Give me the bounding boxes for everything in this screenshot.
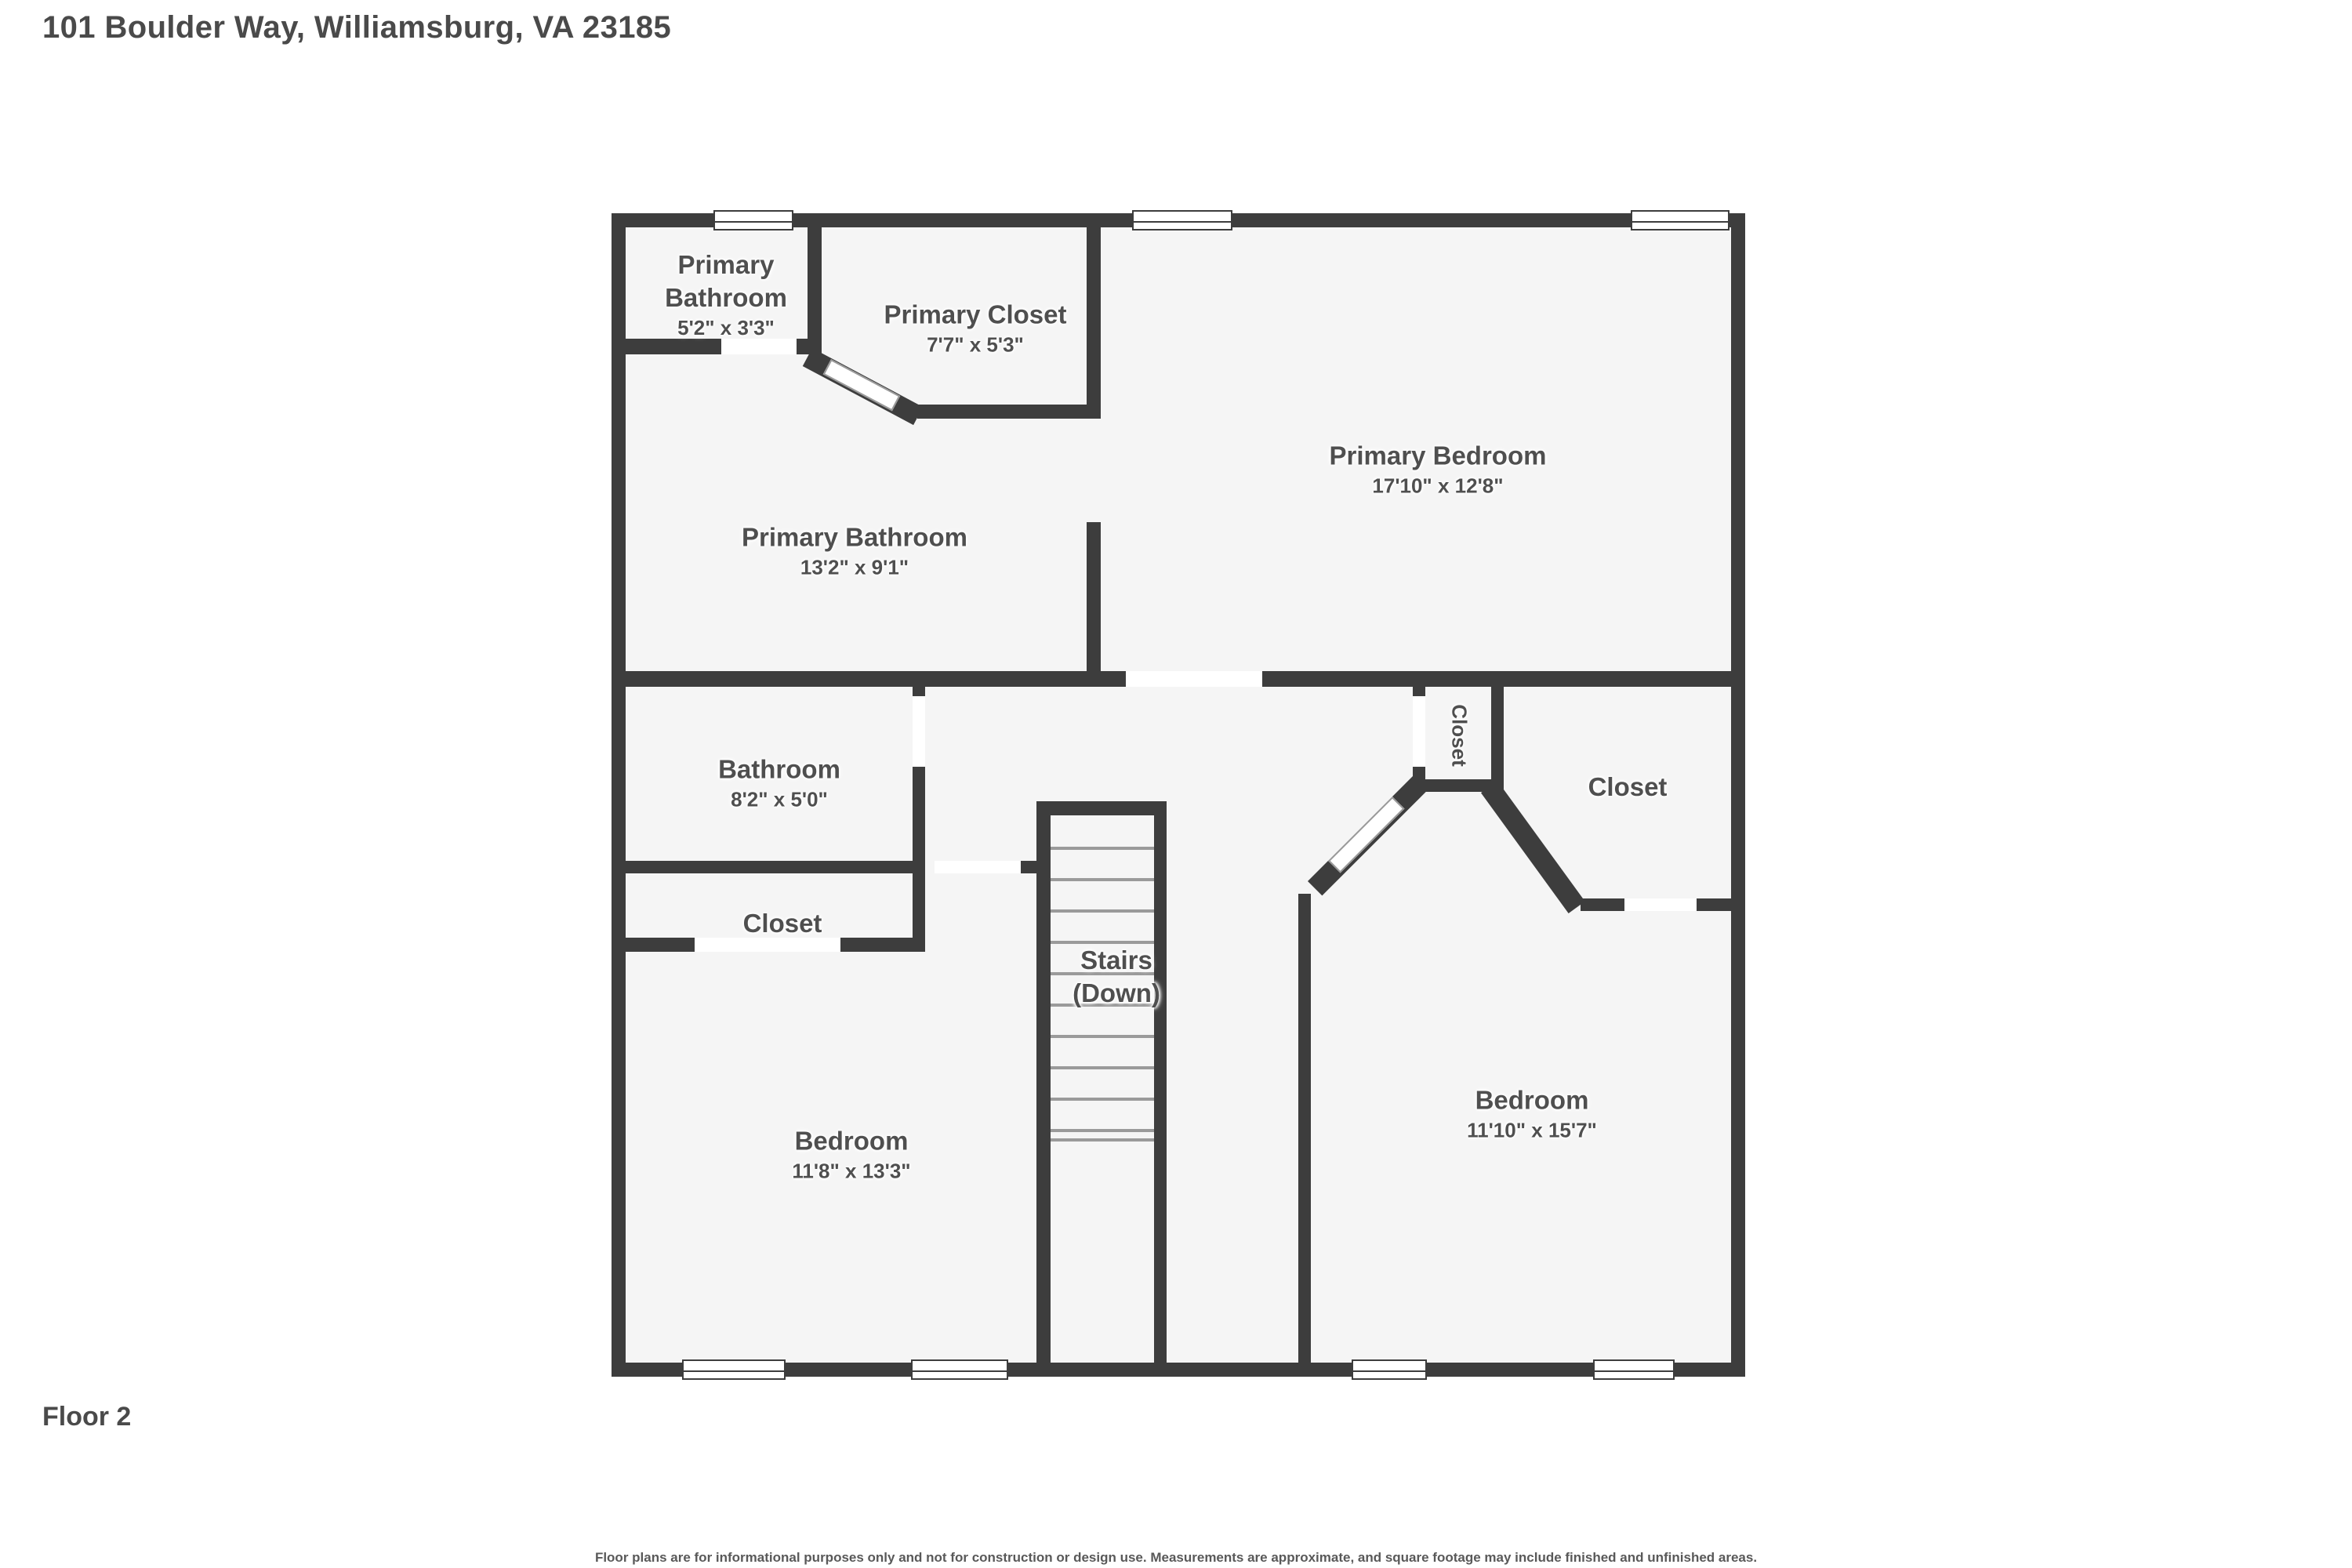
wall [1087,522,1101,671]
door-opening [913,696,925,767]
floor-plan-page: 101 Boulder Way, Williamsburg, VA 23185 … [0,0,2352,1568]
room-dimensions: 5'2" x 3'3" [665,317,787,343]
floor-plan: Primary Bathroom 5'2" x 3'3" Primary Clo… [0,0,2352,1568]
room-name: Primary [665,250,787,283]
room-dimensions: 11'8" x 13'3" [792,1159,910,1185]
window-mullion [1595,1370,1673,1371]
wall [808,213,822,354]
wall [913,687,925,696]
window-mullion [1353,1370,1425,1371]
wall [1731,213,1745,1377]
wall [612,861,925,873]
wall [1036,801,1051,1377]
room-label-bedroom-left: Bedroom 11'8" x 13'3" [792,1126,910,1185]
door-opening [1126,671,1262,687]
wall [1021,861,1036,873]
door-opening [935,861,1021,873]
room-dimensions: 17'10" x 12'8" [1330,474,1547,499]
stair-step-line [1051,1129,1154,1131]
room-name: Bathroom [665,283,787,316]
room-name: Bathroom [718,754,840,787]
floor-label: Floor 2 [42,1402,131,1433]
window [1631,210,1730,230]
stairs-direction: (Down) [1073,978,1160,1011]
wall [1087,213,1101,419]
room-dimensions: 8'2" x 5'0" [718,787,840,813]
room-dimensions: 13'2" x 9'1" [742,555,967,581]
stair-step-line [1051,1098,1154,1100]
room-name: Closet [1445,704,1471,766]
disclaimer-text: Floor plans are for informational purpos… [0,1549,2352,1565]
room-label-closet-hall: Closet [743,909,822,942]
wall [1154,801,1167,1377]
room-label-primary-closet: Primary Closet 7'7" x 5'3" [884,299,1067,358]
wall [917,405,1101,419]
window [682,1359,786,1380]
window-mullion [684,1370,784,1371]
room-name: Primary Closet [884,299,1067,332]
room-label-bedroom-right: Bedroom 11'10" x 15'7" [1467,1085,1597,1144]
room-label-bathroom: Bathroom 8'2" x 5'0" [718,754,840,813]
wall [1298,894,1311,1377]
window-mullion [1632,220,1728,222]
window-mullion [1134,220,1231,222]
wall [1036,801,1167,815]
room-dimensions: 11'10" x 15'7" [1467,1118,1597,1144]
wall [1491,687,1504,792]
wall [913,767,925,861]
wall [1413,767,1425,792]
room-label-primary-bedroom: Primary Bedroom 17'10" x 12'8" [1330,441,1547,499]
stair-step-line [1051,847,1154,849]
room-label-closet-narrow: Closet [1445,704,1471,766]
stair-step-line [1051,1138,1154,1141]
wall [1413,779,1504,792]
room-dimensions: 7'7" x 5'3" [884,332,1067,358]
stair-step-line [1051,1066,1154,1069]
wall [1413,687,1425,696]
stair-step-line [1051,941,1154,943]
wall [1697,898,1731,911]
door-opening [1624,898,1697,911]
window [911,1359,1008,1380]
room-label-primary-bathroom-small: Primary Bathroom 5'2" x 3'3" [665,250,787,343]
wall [1262,671,1745,687]
room-name: Bedroom [792,1126,910,1159]
window [1132,210,1232,230]
stair-step-line [1051,909,1154,912]
room-name: Closet [1588,772,1668,805]
room-label-stairs: Stairs (Down) [1073,946,1160,1011]
wall [797,339,822,354]
room-name: Primary Bedroom [1330,441,1547,474]
room-name: Bedroom [1467,1085,1597,1118]
wall [1581,898,1624,911]
window-mullion [715,220,792,222]
wall [612,671,1126,687]
wall [612,213,626,1377]
room-label-primary-bathroom: Primary Bathroom 13'2" x 9'1" [742,522,967,581]
window-mullion [913,1370,1007,1371]
wall [840,938,925,952]
stair-step-line [1051,878,1154,880]
wall [913,873,925,938]
room-name: Primary Bathroom [742,522,967,555]
stair-step-line [1051,1035,1154,1037]
room-name: Closet [743,909,822,942]
room-name: Stairs [1073,946,1160,978]
window [1352,1359,1427,1380]
room-label-closet-right: Closet [1588,772,1668,805]
window [1593,1359,1675,1380]
door-opening [1413,696,1425,767]
window [713,210,793,230]
